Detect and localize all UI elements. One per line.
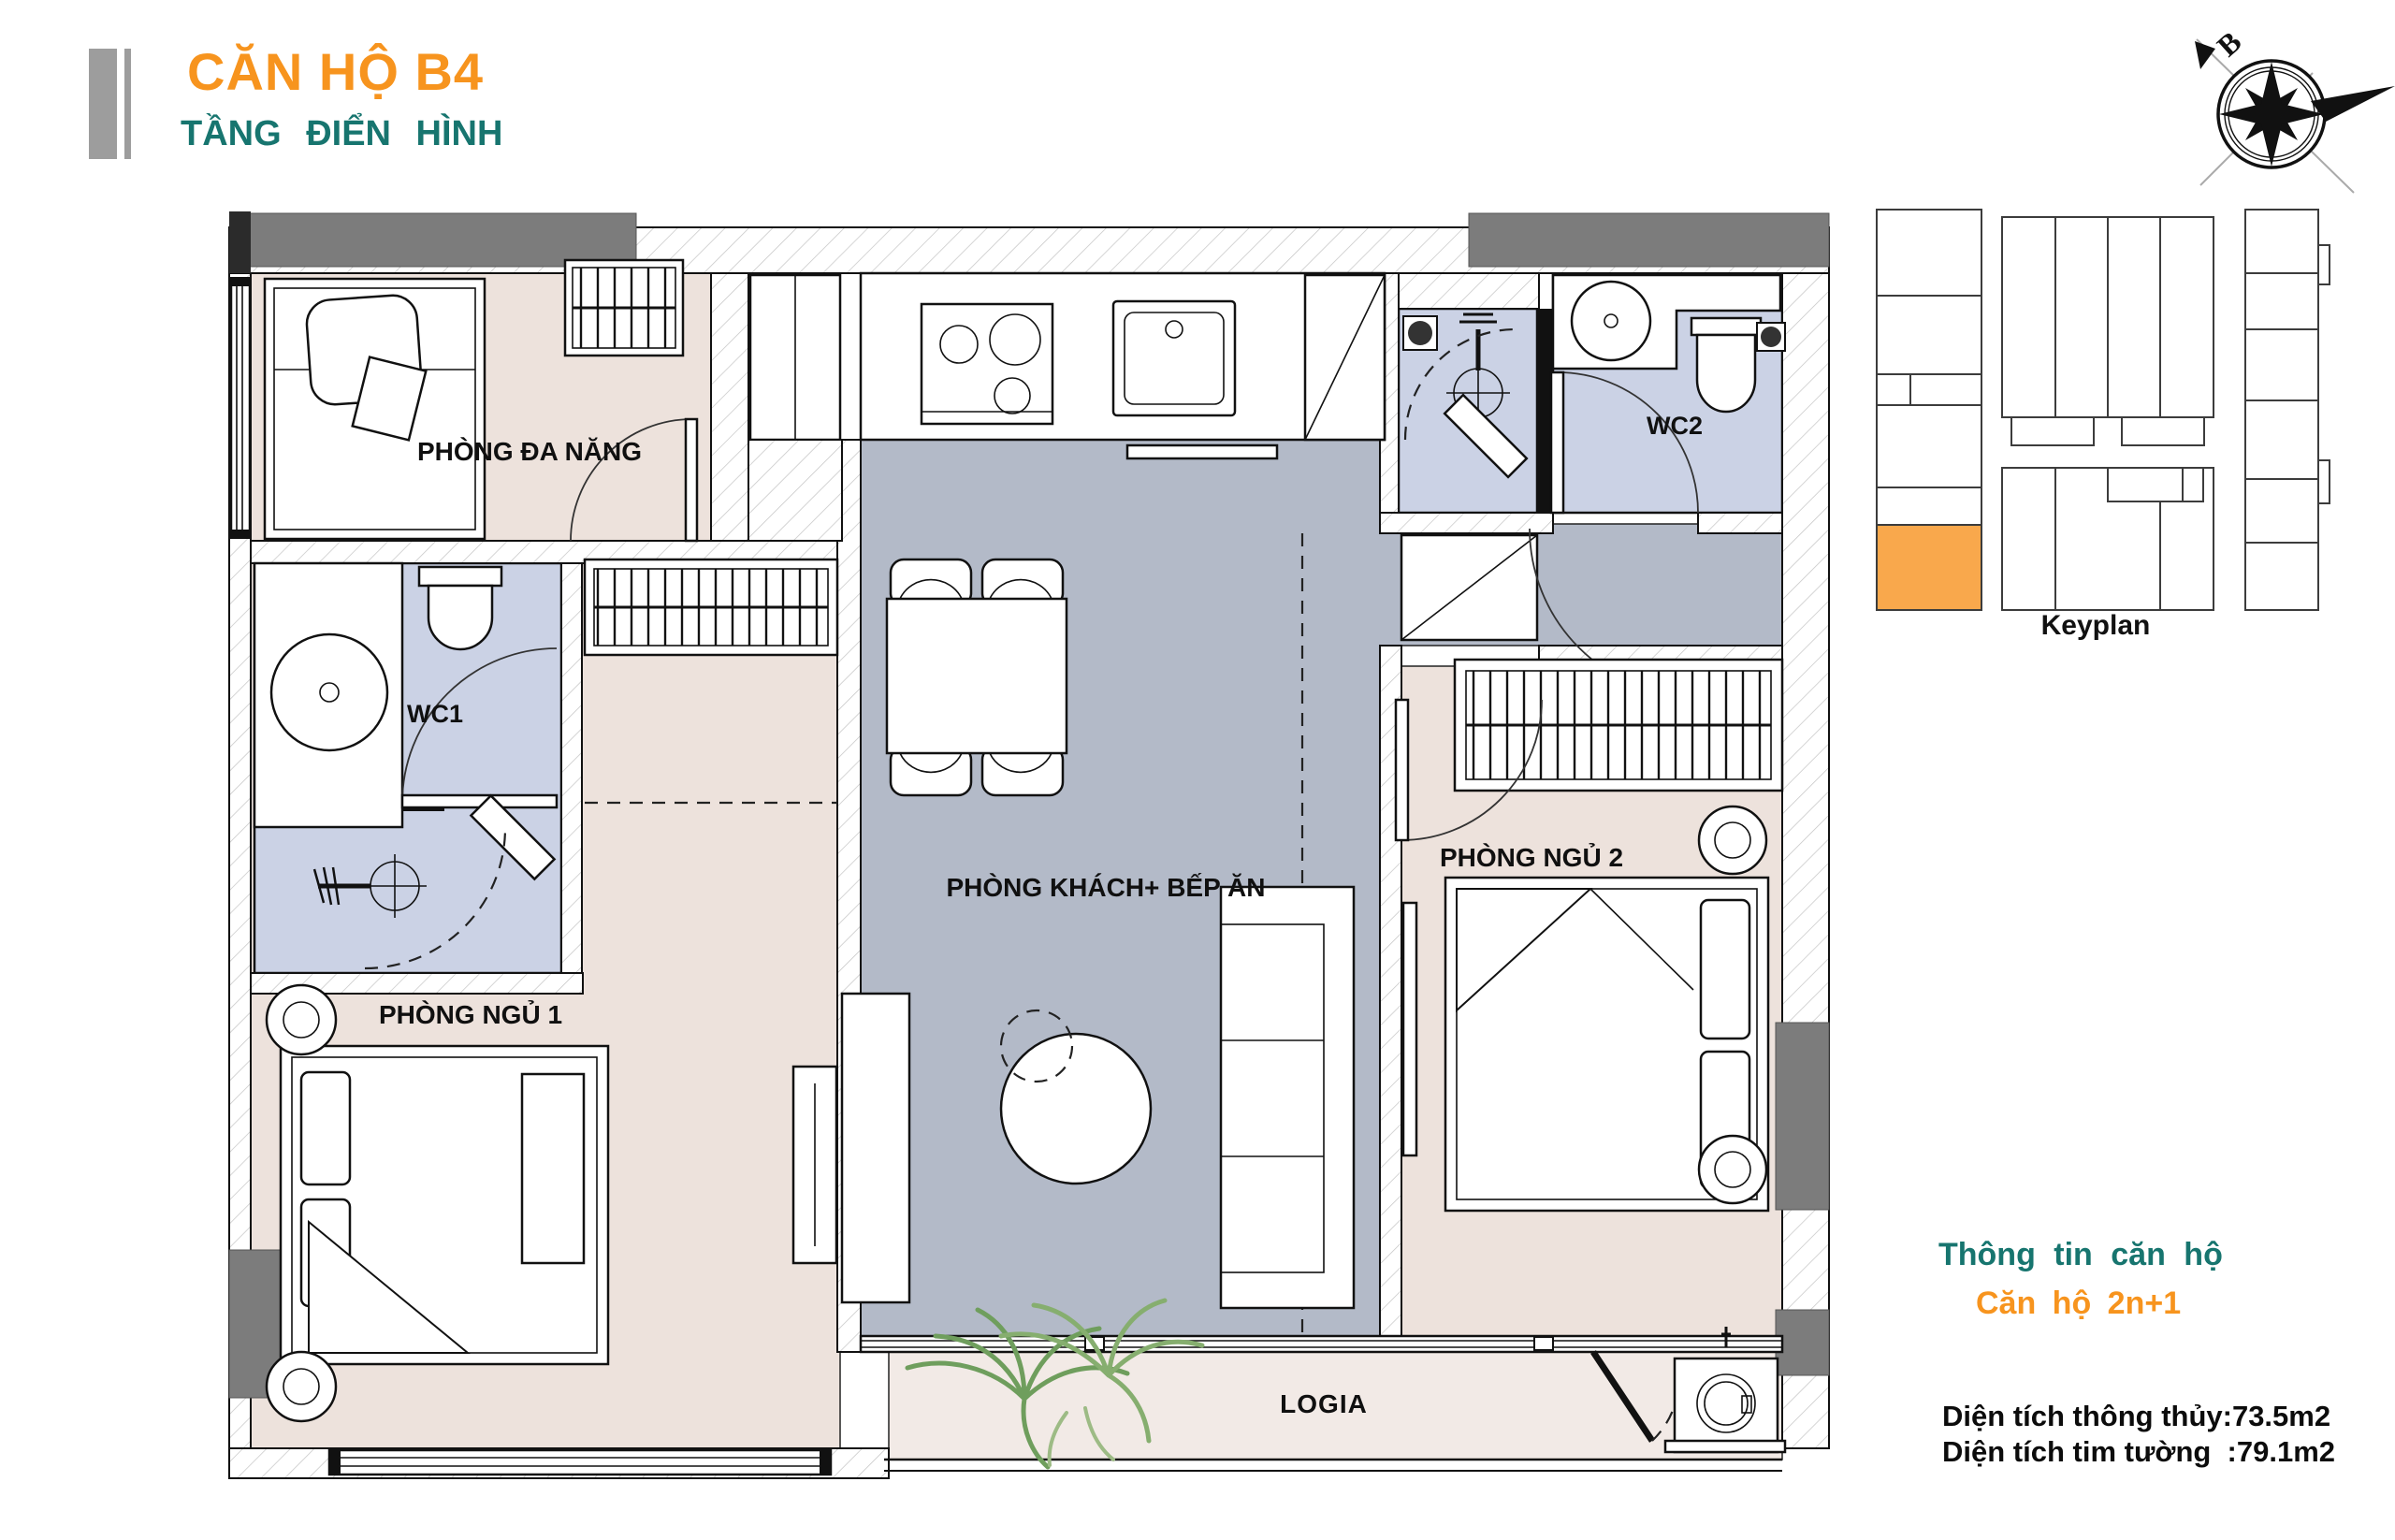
label-logia: LOGIA — [1280, 1389, 1368, 1418]
wc1-sink — [271, 634, 387, 750]
pillow — [301, 1072, 350, 1184]
info-area-net: Diện tích thông thủy:73.5m2 — [1942, 1400, 2330, 1433]
nightstand — [1699, 1136, 1766, 1203]
label-wc1: WC1 — [407, 700, 463, 728]
dining-table — [887, 599, 1067, 753]
keyplan-highlight-unit — [1877, 525, 1981, 610]
kitchen-pass — [1127, 445, 1277, 458]
sliding-door-logia — [861, 1336, 1782, 1352]
info-area-gross: Diện tích tim tường :79.1m2 — [1942, 1435, 2335, 1469]
bedroom1-rug — [522, 1074, 584, 1263]
keyplan — [1877, 210, 2330, 610]
pillow — [1701, 900, 1749, 1039]
label-multi-purpose: PHÒNG ĐA NĂNG — [417, 437, 642, 466]
wardrobe-multi-purpose — [565, 260, 683, 356]
compass-rose: B — [2195, 24, 2395, 193]
floorplan-page: CĂN HỘ B4 TẦNG ĐIỂN HÌNH — [0, 0, 2395, 1540]
wardrobe-bedroom2 — [1455, 660, 1782, 791]
label-bedroom2: PHÒNG NGỦ 2 — [1440, 842, 1623, 872]
compass-needle — [2311, 86, 2395, 122]
bedroom2 — [1396, 660, 1782, 1211]
keyplan-caption: Keyplan — [1955, 610, 2236, 642]
sofa — [1221, 887, 1354, 1308]
coffee-table — [1001, 1034, 1151, 1184]
tv-cabinet — [842, 994, 909, 1302]
kitchen-sink — [1113, 301, 1235, 415]
info-heading: Thông tin căn hộ — [1938, 1237, 2223, 1273]
window-bedroom1 — [329, 1450, 831, 1475]
label-wc2: WC2 — [1647, 412, 1703, 440]
label-bedroom1: PHÒNG NGỦ 1 — [379, 999, 562, 1029]
wc2-sink — [1572, 282, 1650, 360]
nightstand — [267, 1352, 336, 1421]
label-living-kitchen: PHÒNG KHÁCH+ BẾP ĂN — [947, 873, 1266, 902]
wardrobe-bedroom1 — [585, 559, 837, 655]
wc2-toilet — [1691, 318, 1761, 412]
nightstand — [1699, 806, 1766, 874]
window-left — [231, 281, 250, 535]
bedroom2-mirror — [1403, 903, 1416, 1155]
info-unit-type: Căn hộ 2n+1 — [1976, 1286, 2181, 1322]
nightstand — [267, 985, 336, 1054]
